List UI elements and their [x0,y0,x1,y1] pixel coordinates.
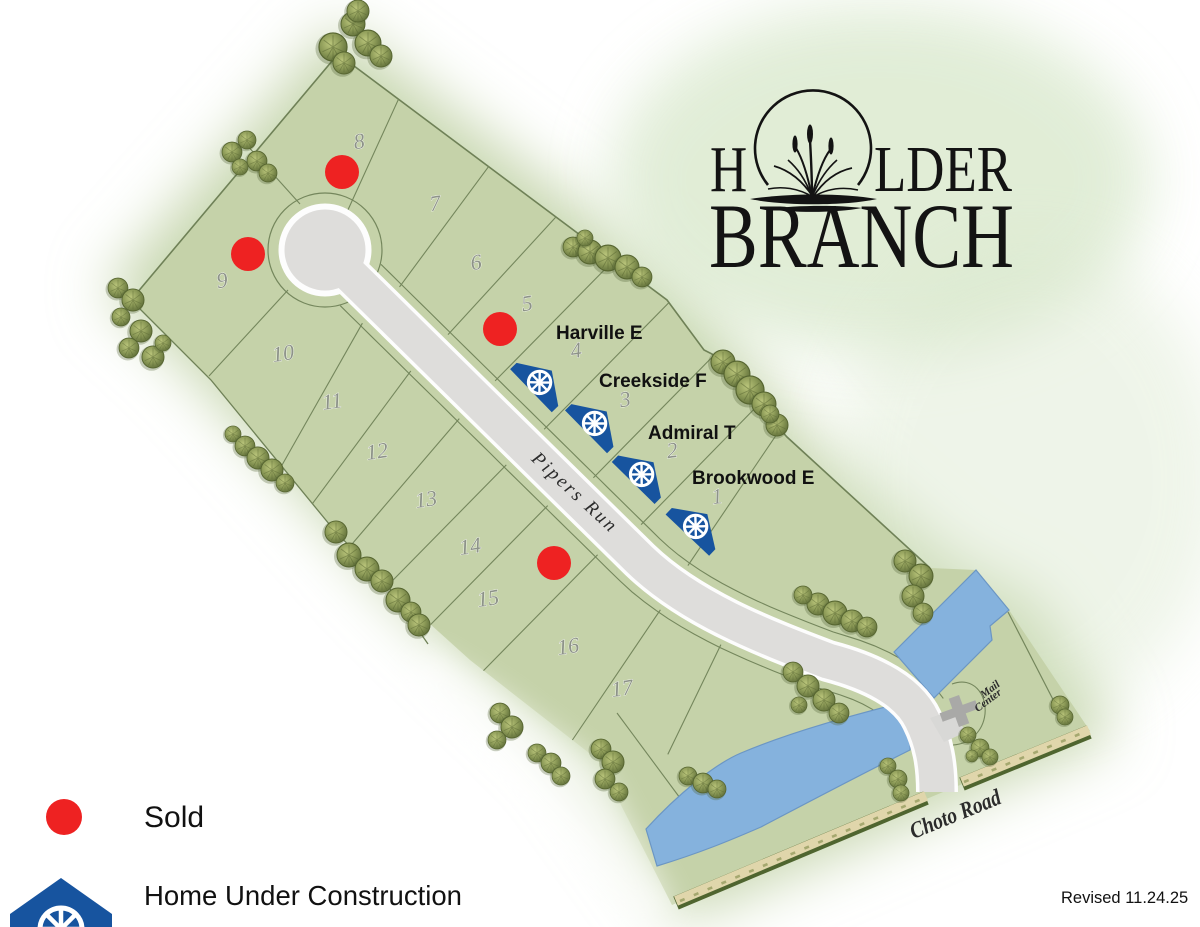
svg-text:Admiral T: Admiral T [648,423,736,444]
svg-text:Revised 11.24.25: Revised 11.24.25 [1061,889,1188,907]
svg-text:10: 10 [270,339,295,367]
svg-text:11: 11 [320,387,344,415]
svg-text:Harville E: Harville E [556,323,643,344]
svg-text:Home Under Construction: Home Under Construction [144,880,462,911]
svg-text:Creekside F: Creekside F [599,371,707,392]
svg-text:12: 12 [364,437,389,465]
svg-text:16: 16 [555,632,580,660]
svg-text:13: 13 [413,485,438,513]
svg-text:Brookwood E: Brookwood E [692,468,814,489]
svg-text:15: 15 [475,584,500,612]
svg-text:17: 17 [609,674,635,702]
svg-text:Sold: Sold [144,801,204,834]
svg-text:14: 14 [457,532,482,560]
